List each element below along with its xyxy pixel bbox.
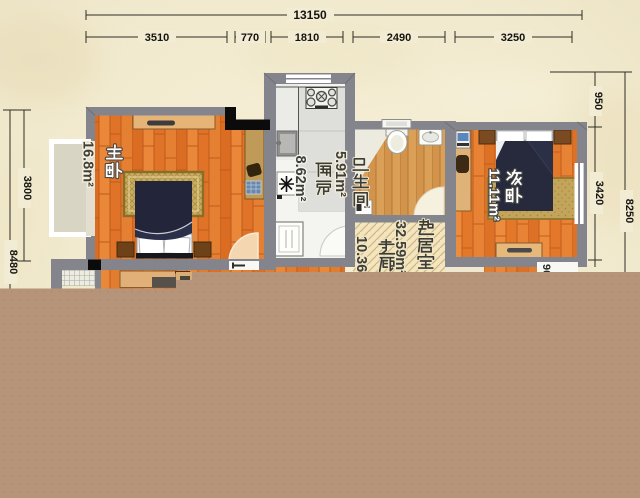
svg-text:16.8m²: 16.8m² [80,141,96,187]
svg-text:3800: 3800 [21,176,33,200]
svg-text:1810: 1810 [295,32,319,44]
svg-text:770: 770 [241,32,259,44]
svg-text:8250: 8250 [623,199,635,223]
svg-text:8480: 8480 [7,250,19,274]
svg-text:5.91m²: 5.91m² [332,151,348,197]
svg-text:950: 950 [592,92,604,110]
svg-text:3420: 3420 [593,181,605,205]
svg-text:8.62m²: 8.62m² [292,156,308,202]
svg-text:11.11m²: 11.11m² [486,169,502,222]
svg-text:3510: 3510 [145,32,169,44]
svg-text:3250: 3250 [501,32,525,44]
svg-text:2490: 2490 [387,32,411,44]
svg-text:13150: 13150 [293,8,327,22]
